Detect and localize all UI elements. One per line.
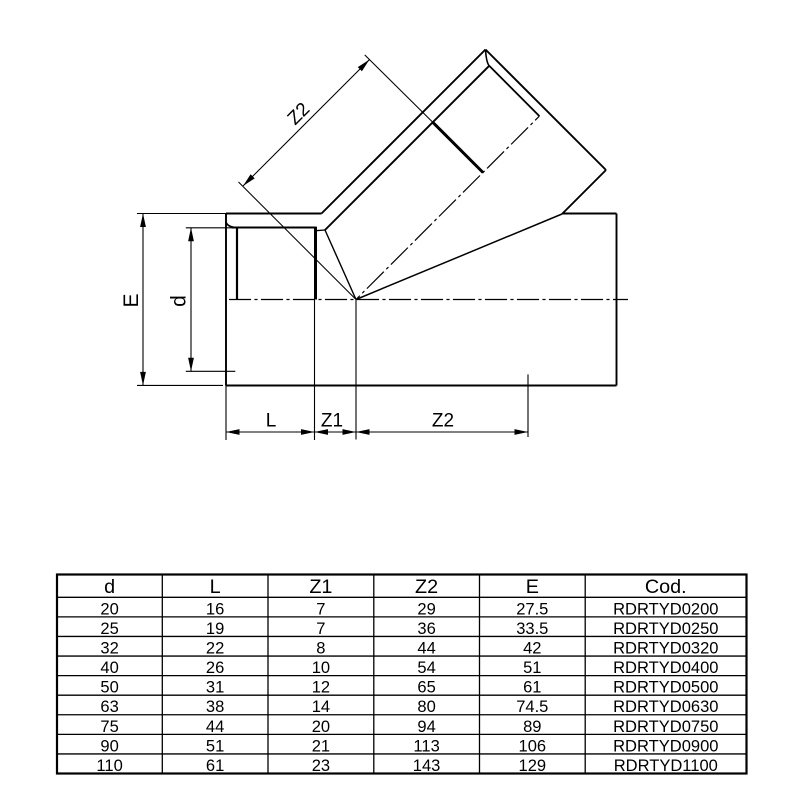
- svg-text:27.5: 27.5: [516, 599, 548, 618]
- svg-text:12: 12: [312, 678, 330, 697]
- svg-text:110: 110: [96, 756, 122, 775]
- svg-text:50: 50: [100, 678, 118, 697]
- svg-text:29: 29: [417, 599, 435, 618]
- svg-text:31: 31: [206, 678, 224, 697]
- svg-text:RDRTYD0750: RDRTYD0750: [613, 717, 718, 736]
- svg-text:61: 61: [206, 756, 224, 775]
- svg-text:RDRTYD0900: RDRTYD0900: [613, 736, 718, 755]
- svg-text:129: 129: [519, 756, 547, 775]
- svg-text:16: 16: [206, 599, 224, 618]
- svg-text:51: 51: [206, 736, 224, 755]
- svg-text:Z1: Z1: [321, 411, 343, 432]
- svg-text:90: 90: [100, 736, 118, 755]
- svg-text:RDRTYD0400: RDRTYD0400: [613, 658, 718, 677]
- svg-text:14: 14: [312, 697, 330, 716]
- svg-text:8: 8: [316, 638, 325, 657]
- svg-text:89: 89: [523, 717, 541, 736]
- svg-text:36: 36: [417, 619, 435, 638]
- svg-text:63: 63: [100, 697, 118, 716]
- svg-text:RDRTYD0250: RDRTYD0250: [613, 619, 718, 638]
- svg-text:E: E: [120, 293, 143, 307]
- svg-text:23: 23: [312, 756, 330, 775]
- svg-text:61: 61: [523, 678, 541, 697]
- svg-text:Cod.: Cod.: [645, 576, 687, 598]
- svg-text:7: 7: [316, 599, 325, 618]
- svg-text:74.5: 74.5: [516, 697, 548, 716]
- svg-text:RDRTYD0320: RDRTYD0320: [613, 638, 718, 657]
- svg-text:E: E: [526, 576, 539, 598]
- svg-text:L: L: [266, 411, 277, 432]
- svg-text:21: 21: [312, 736, 330, 755]
- svg-text:44: 44: [417, 638, 435, 657]
- svg-text:44: 44: [206, 717, 224, 736]
- svg-text:75: 75: [100, 717, 118, 736]
- svg-text:80: 80: [417, 697, 435, 716]
- svg-text:42: 42: [523, 638, 541, 657]
- svg-text:54: 54: [417, 658, 435, 677]
- svg-text:10: 10: [312, 658, 330, 677]
- svg-text:RDRTYD0200: RDRTYD0200: [613, 599, 718, 618]
- svg-text:Z2: Z2: [432, 411, 454, 432]
- svg-text:143: 143: [413, 756, 441, 775]
- svg-text:40: 40: [100, 658, 118, 677]
- svg-text:26: 26: [206, 658, 224, 677]
- svg-text:51: 51: [523, 658, 541, 677]
- svg-text:20: 20: [312, 717, 330, 736]
- svg-text:d: d: [104, 576, 115, 598]
- svg-text:Z2: Z2: [415, 576, 438, 598]
- svg-text:65: 65: [417, 678, 435, 697]
- svg-text:L: L: [210, 576, 221, 598]
- svg-text:113: 113: [413, 736, 439, 755]
- svg-text:106: 106: [519, 736, 547, 755]
- svg-text:7: 7: [316, 619, 325, 638]
- svg-text:94: 94: [417, 717, 435, 736]
- svg-text:38: 38: [206, 697, 224, 716]
- svg-text:33.5: 33.5: [516, 619, 548, 638]
- svg-text:Z1: Z1: [309, 576, 332, 598]
- svg-text:RDRTYD0630: RDRTYD0630: [613, 697, 718, 716]
- svg-text:RDRTYD0500: RDRTYD0500: [613, 678, 718, 697]
- svg-text:RDRTYD1100: RDRTYD1100: [614, 756, 718, 775]
- svg-text:25: 25: [100, 619, 118, 638]
- svg-text:19: 19: [206, 619, 224, 638]
- svg-text:20: 20: [100, 599, 118, 618]
- svg-text:d: d: [168, 295, 191, 307]
- svg-text:22: 22: [206, 638, 224, 657]
- svg-text:32: 32: [100, 638, 118, 657]
